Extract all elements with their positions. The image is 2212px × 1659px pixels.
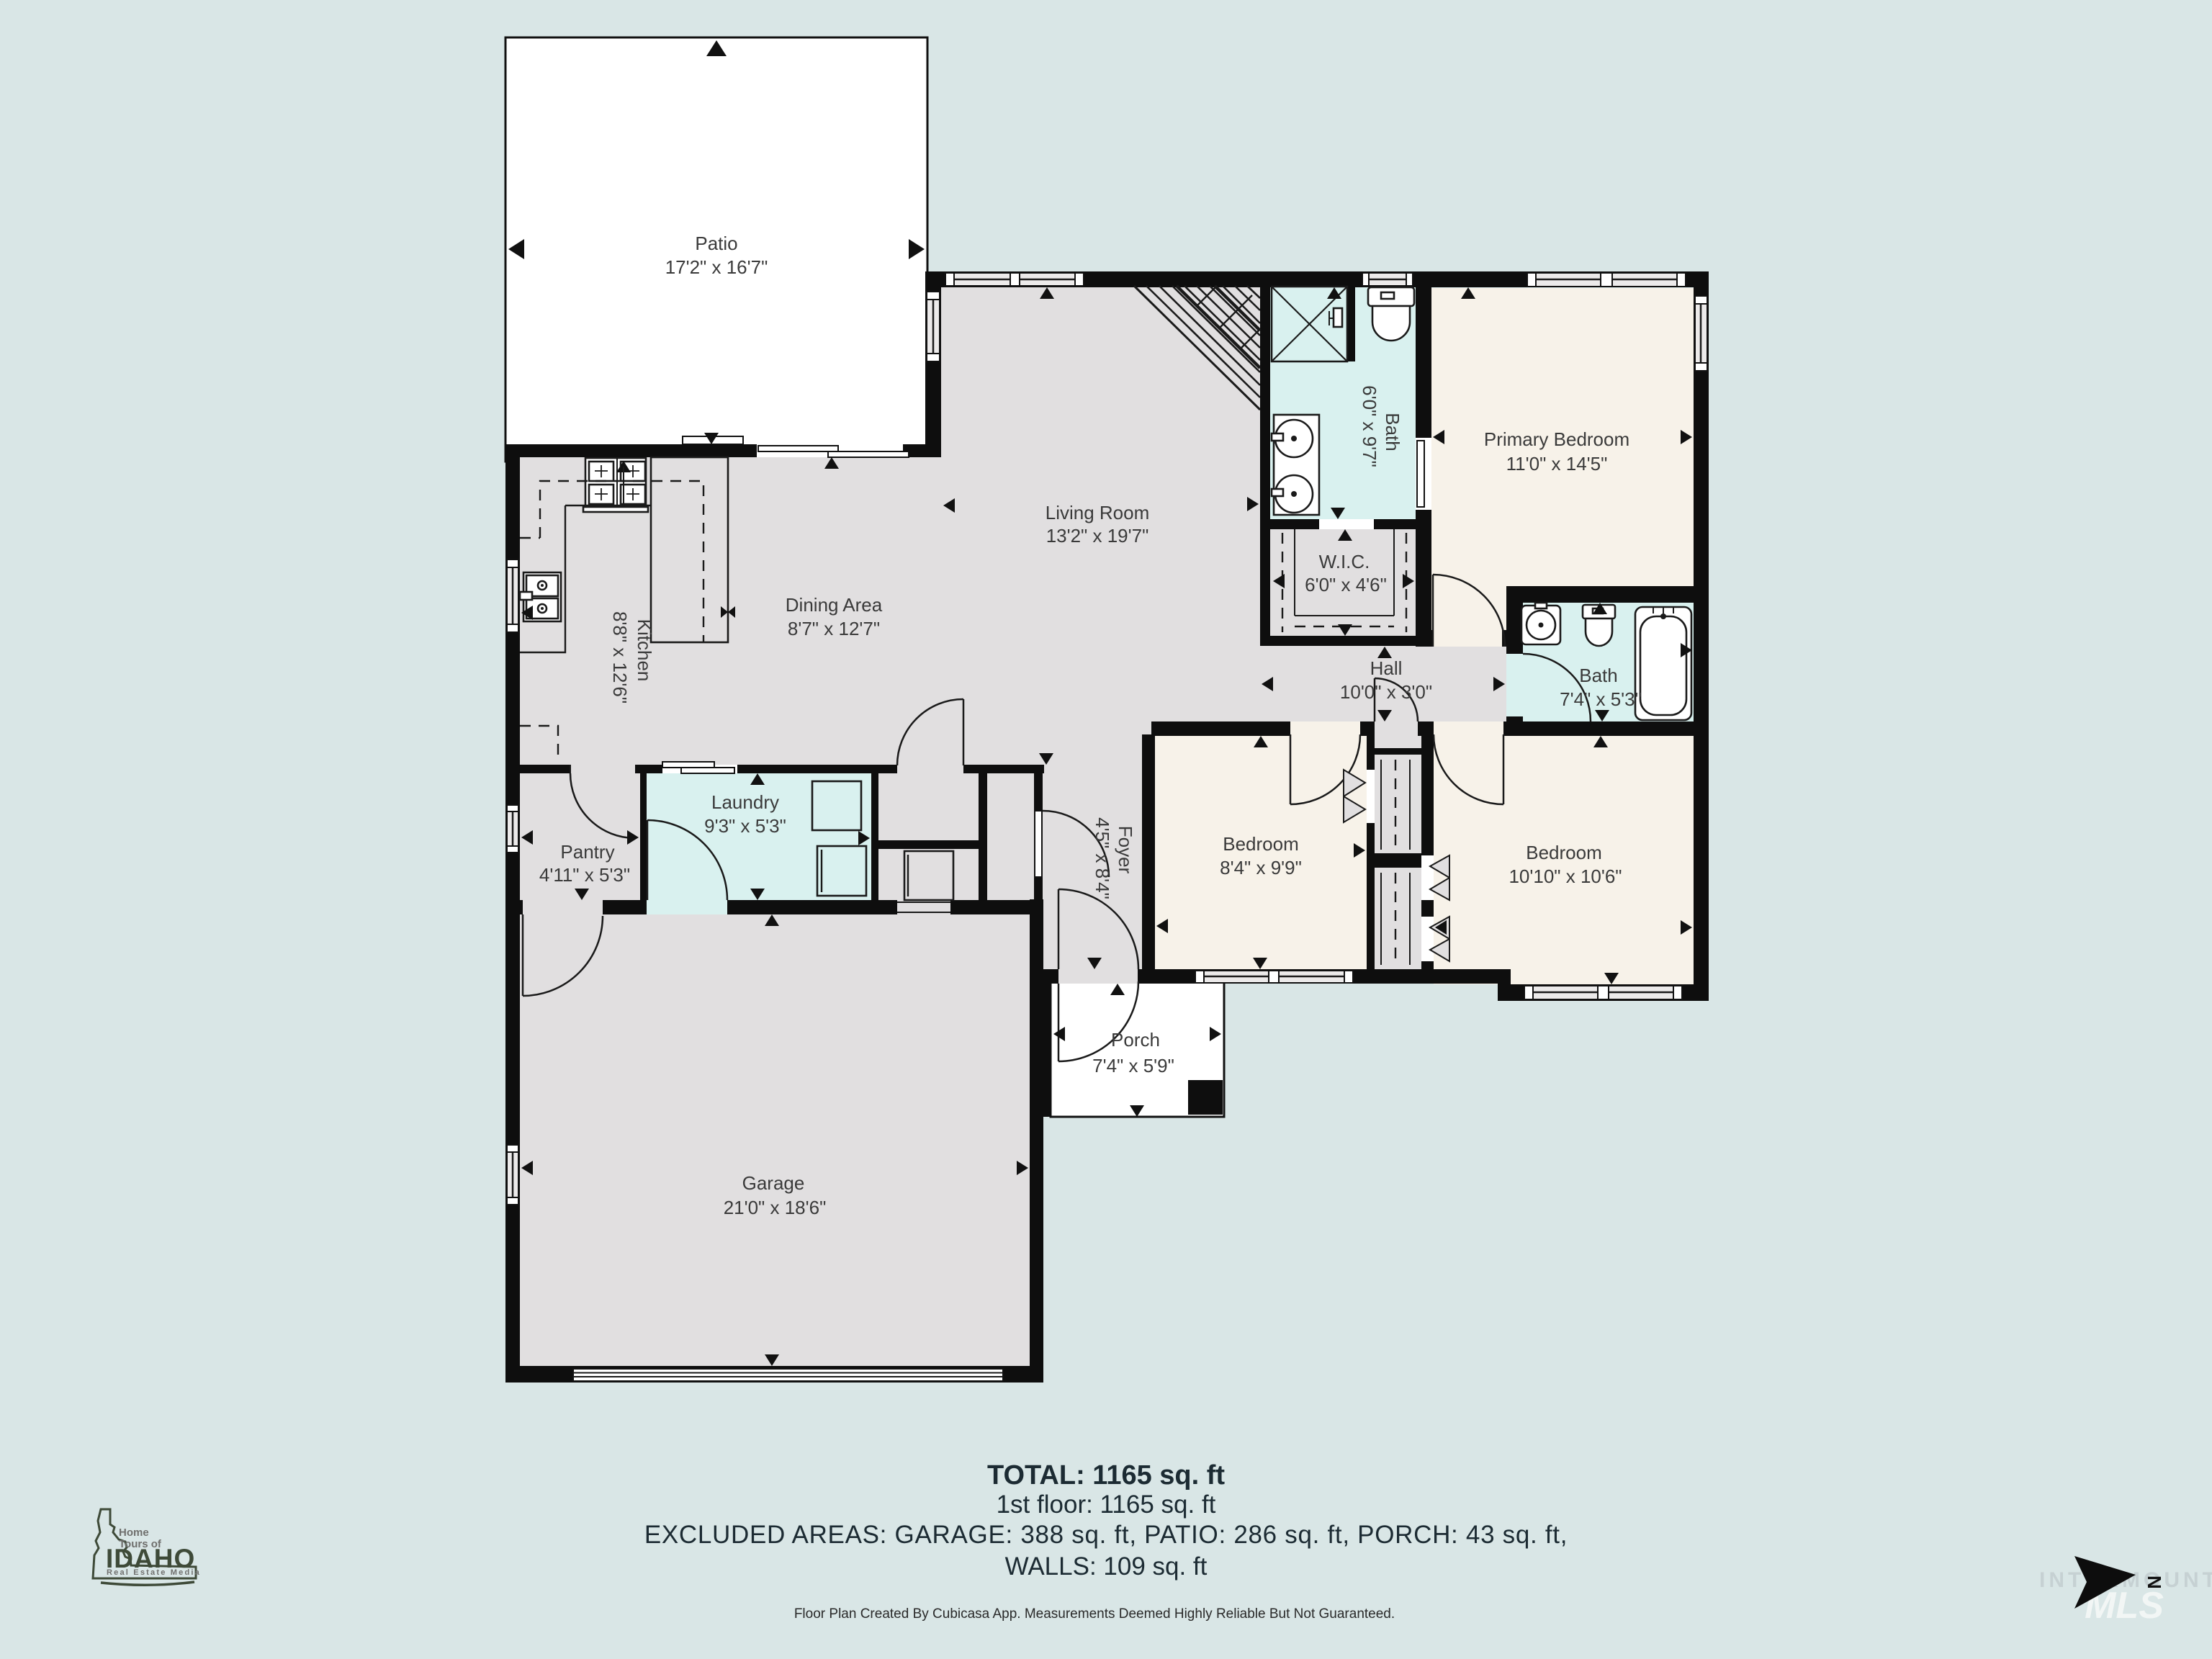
svg-text:6'0" x 9'7": 6'0" x 9'7" <box>1359 385 1380 467</box>
svg-text:8'8" x 12'6": 8'8" x 12'6" <box>609 611 631 703</box>
svg-text:17'2" x 16'7": 17'2" x 16'7" <box>665 256 768 278</box>
svg-text:Pantry: Pantry <box>560 841 614 863</box>
svg-text:Garage: Garage <box>742 1172 805 1194</box>
svg-text:N: N <box>2144 1575 2165 1589</box>
svg-text:21'0" x 18'6": 21'0" x 18'6" <box>724 1197 827 1218</box>
svg-text:Bath: Bath <box>1579 665 1618 686</box>
svg-text:WALLS: 109 sq. ft: WALLS: 109 sq. ft <box>1005 1552 1208 1581</box>
svg-text:13'2" x 19'7": 13'2" x 19'7" <box>1046 525 1149 547</box>
svg-text:EXCLUDED AREAS: GARAGE: 388 sq: EXCLUDED AREAS: GARAGE: 388 sq. ft, PATI… <box>644 1521 1568 1549</box>
svg-text:Home: Home <box>119 1527 149 1539</box>
svg-text:7'4" x 5'3": 7'4" x 5'3" <box>1560 688 1642 710</box>
svg-text:10'10" x 10'6": 10'10" x 10'6" <box>1509 866 1622 887</box>
svg-text:Floor Plan Created By Cubicasa: Floor Plan Created By Cubicasa App. Meas… <box>794 1606 1395 1622</box>
svg-text:Laundry: Laundry <box>711 791 779 813</box>
svg-text:4'11" x 5'3": 4'11" x 5'3" <box>539 864 630 886</box>
svg-text:Real Estate Media: Real Estate Media <box>107 1568 201 1577</box>
svg-text:Primary Bedroom: Primary Bedroom <box>1484 428 1629 450</box>
svg-text:Kitchen: Kitchen <box>634 619 655 682</box>
svg-text:10'0" x 3'0": 10'0" x 3'0" <box>1340 681 1432 703</box>
svg-text:Bedroom: Bedroom <box>1526 842 1602 863</box>
svg-text:9'3" x 5'3": 9'3" x 5'3" <box>704 815 786 837</box>
svg-text:Porch: Porch <box>1111 1029 1160 1051</box>
svg-text:8'7" x 12'7": 8'7" x 12'7" <box>788 618 880 639</box>
svg-text:11'0" x 14'5": 11'0" x 14'5" <box>1506 453 1608 475</box>
svg-text:Living Room: Living Room <box>1046 502 1150 523</box>
svg-text:Bath: Bath <box>1382 413 1403 451</box>
svg-text:1st floor: 1165 sq. ft: 1st floor: 1165 sq. ft <box>997 1491 1216 1519</box>
svg-text:4'5" x 8'4": 4'5" x 8'4" <box>1092 817 1113 899</box>
svg-text:TOTAL: 1165 sq. ft: TOTAL: 1165 sq. ft <box>987 1460 1225 1491</box>
svg-text:Patio: Patio <box>695 233 737 254</box>
svg-text:6'0" x 4'6": 6'0" x 4'6" <box>1305 574 1387 595</box>
svg-text:8'4" x 9'9": 8'4" x 9'9" <box>1220 857 1302 878</box>
svg-text:7'4" x 5'9": 7'4" x 5'9" <box>1092 1055 1174 1076</box>
svg-text:W.I.C.: W.I.C. <box>1319 551 1370 572</box>
svg-text:Foyer: Foyer <box>1115 826 1136 874</box>
svg-text:Hall: Hall <box>1370 657 1403 679</box>
svg-text:Bedroom: Bedroom <box>1223 833 1299 855</box>
svg-text:Dining Area: Dining Area <box>786 594 883 616</box>
